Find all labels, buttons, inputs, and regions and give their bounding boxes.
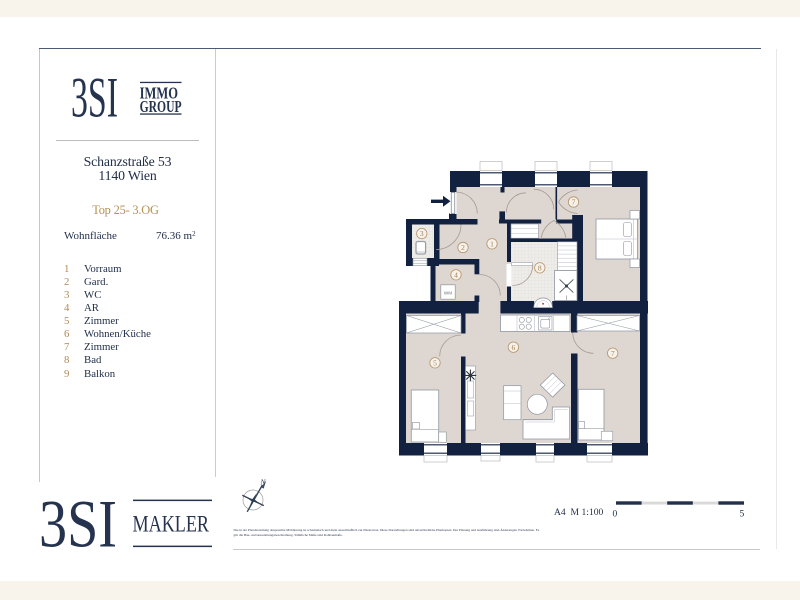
svg-text:6: 6	[512, 343, 516, 352]
svg-text:WM: WM	[444, 290, 452, 295]
svg-text:3SI: 3SI	[39, 490, 117, 556]
svg-text:4: 4	[454, 270, 458, 279]
svg-text:5: 5	[740, 510, 745, 520]
svg-text:N: N	[260, 478, 267, 487]
svg-text:1: 1	[490, 239, 494, 248]
svg-text:7: 7	[611, 349, 615, 358]
svg-text:2: 2	[461, 243, 465, 252]
svg-text:GROUP: GROUP	[140, 97, 182, 116]
svg-text:MAKLER: MAKLER	[133, 512, 210, 537]
svg-text:3SI: 3SI	[71, 67, 118, 123]
svg-text:8: 8	[538, 263, 542, 272]
svg-text:3: 3	[420, 229, 424, 238]
svg-text:7: 7	[572, 198, 576, 207]
svg-text:0: 0	[613, 510, 618, 520]
svg-text:5: 5	[433, 358, 437, 367]
